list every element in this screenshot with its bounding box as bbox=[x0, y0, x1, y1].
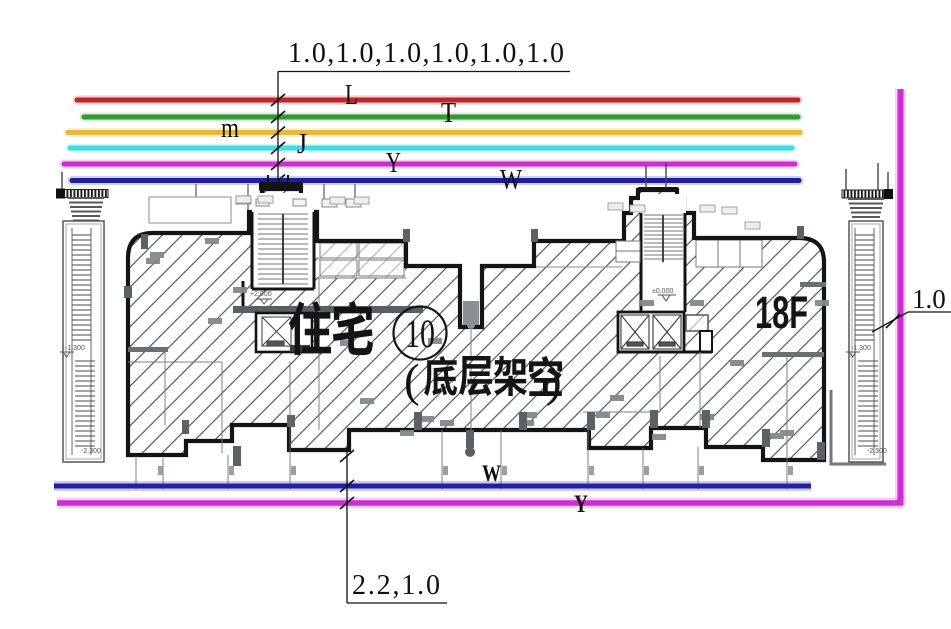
svg-text:-1.300: -1.300 bbox=[851, 345, 871, 352]
svg-text:18F: 18F bbox=[755, 287, 808, 338]
svg-text:Y: Y bbox=[386, 147, 401, 179]
svg-text:10: 10 bbox=[405, 311, 435, 356]
svg-text:Y: Y bbox=[574, 491, 588, 518]
svg-text:1.0,1.0,1.0,1.0,1.0,1.0: 1.0,1.0,1.0,1.0,1.0,1.0 bbox=[288, 38, 564, 69]
svg-text:T: T bbox=[441, 97, 456, 129]
svg-text:-2.300: -2.300 bbox=[867, 448, 887, 455]
svg-text:m: m bbox=[221, 112, 239, 144]
svg-text:1.0: 1.0 bbox=[912, 284, 946, 314]
svg-text:-2.300: -2.300 bbox=[81, 448, 101, 455]
svg-text:): ) bbox=[546, 355, 562, 407]
svg-text:L: L bbox=[345, 79, 358, 111]
svg-text:J: J bbox=[297, 128, 307, 160]
svg-text:2.2,1.0: 2.2,1.0 bbox=[352, 570, 440, 601]
svg-text:+2.000: +2.000 bbox=[250, 291, 272, 298]
svg-text:(: ( bbox=[404, 355, 420, 407]
svg-text:W: W bbox=[482, 461, 501, 486]
svg-text:±0.000: ±0.000 bbox=[652, 288, 673, 295]
svg-text:-1.300: -1.300 bbox=[65, 345, 85, 352]
svg-text:W: W bbox=[500, 164, 523, 196]
